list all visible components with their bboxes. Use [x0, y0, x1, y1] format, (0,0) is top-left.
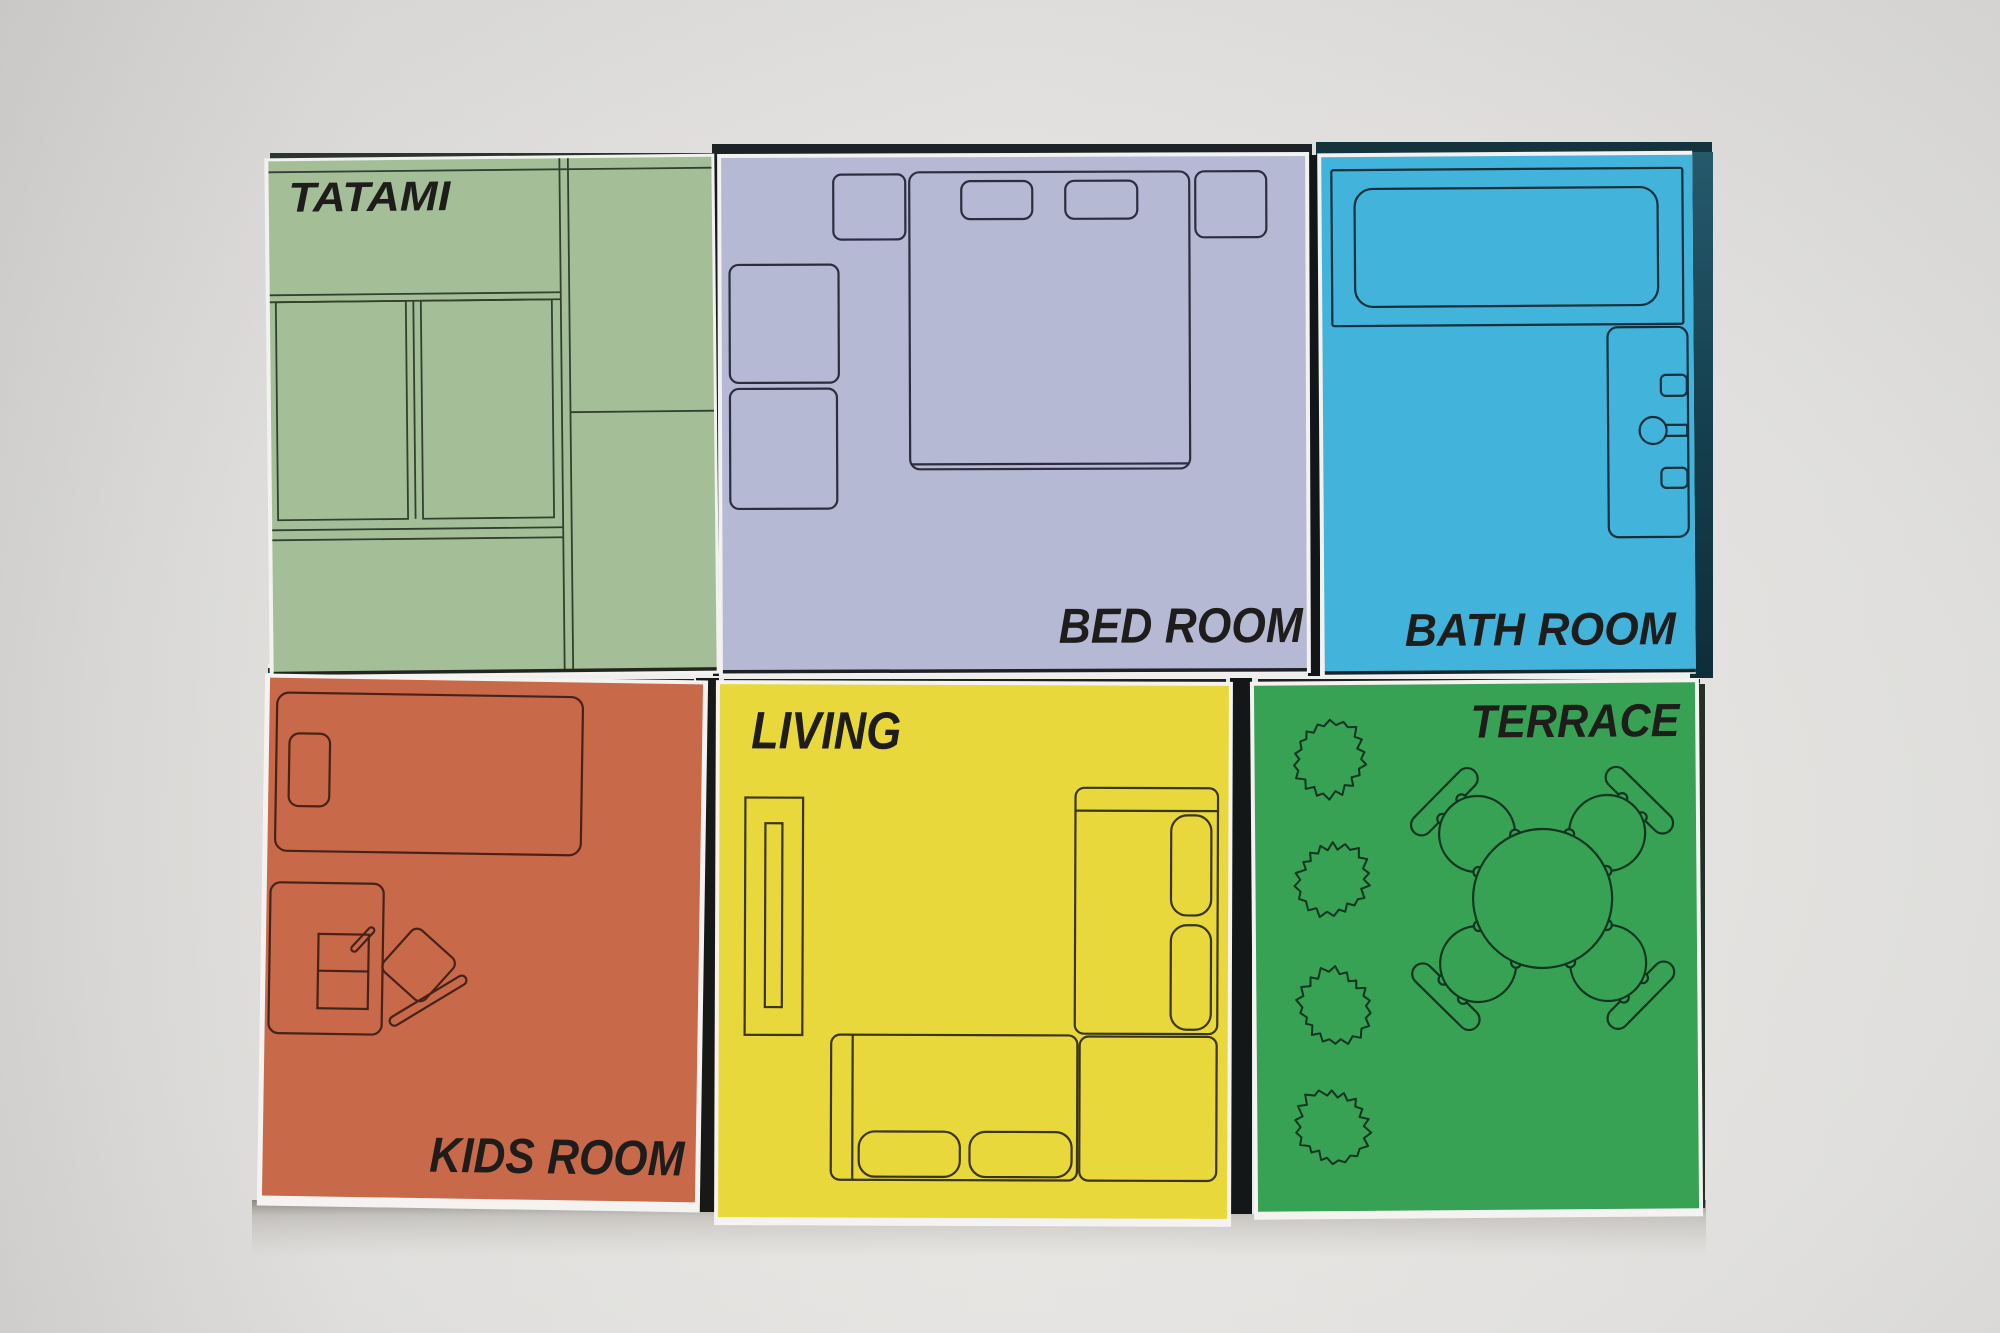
svg-text:TATAMI: TATAMI: [288, 172, 452, 221]
svg-text:KIDS ROOM: KIDS ROOM: [429, 1128, 686, 1187]
svg-text:LIVING: LIVING: [751, 701, 901, 761]
svg-text:BATH ROOM: BATH ROOM: [1405, 602, 1678, 656]
svg-text:TERRACE: TERRACE: [1470, 694, 1681, 748]
svg-text:BED ROOM: BED ROOM: [1059, 598, 1305, 654]
